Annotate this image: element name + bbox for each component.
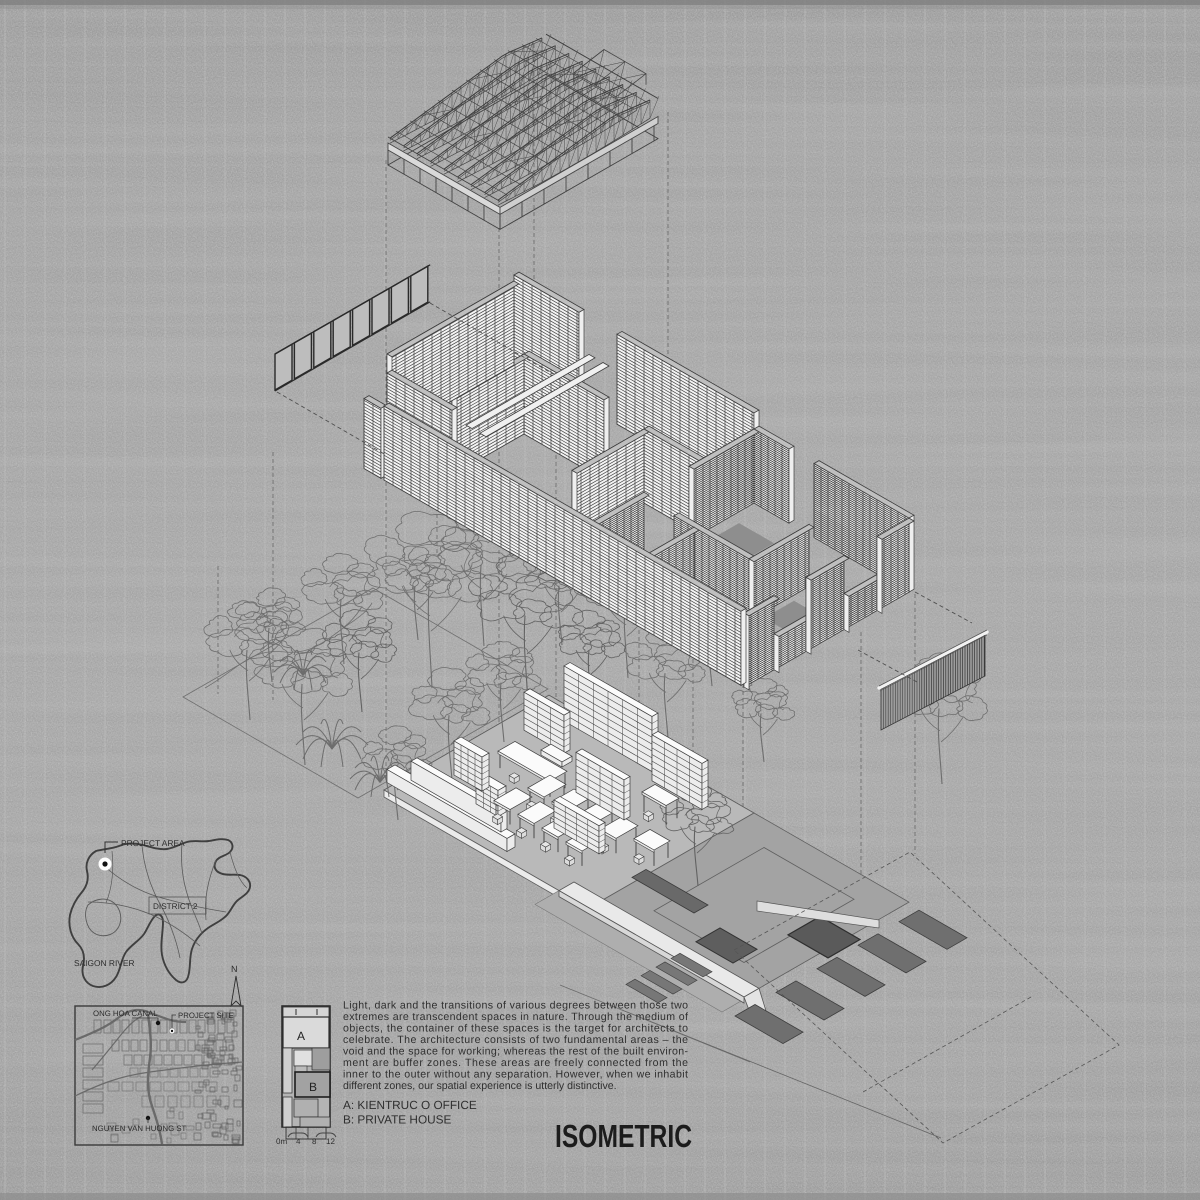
svg-text:ONG HOA CANAL: ONG HOA CANAL — [93, 1009, 158, 1018]
svg-text:NGUYEN VAN HUONG ST: NGUYEN VAN HUONG ST — [92, 1124, 187, 1133]
svg-text:Light, dark and the transition: Light, dark and the transitions of vario… — [343, 1000, 688, 1012]
svg-text:8: 8 — [312, 1137, 317, 1146]
svg-text:inner to the outer without any: inner to the outer without any separatio… — [343, 1069, 688, 1081]
svg-text:12: 12 — [326, 1137, 335, 1146]
svg-text:DISTRICT 2: DISTRICT 2 — [153, 902, 198, 911]
svg-text:N: N — [231, 964, 238, 974]
svg-text:B: PRIVATE HOUSE: B: PRIVATE HOUSE — [343, 1113, 452, 1127]
svg-text:PROJECT SITE: PROJECT SITE — [178, 1011, 234, 1020]
svg-text:ISOMETRIC: ISOMETRIC — [555, 1118, 692, 1154]
svg-text:SAIGON RIVER: SAIGON RIVER — [74, 958, 135, 968]
svg-text:void and the space for working: void and the space for working; whereas … — [343, 1046, 688, 1058]
svg-text:ment are buffer zones. These a: ment are buffer zones. These areas are f… — [343, 1057, 688, 1069]
svg-text:objects, the container of thes: objects, the container of these spaces i… — [343, 1023, 688, 1035]
svg-text:A: A — [297, 1029, 305, 1043]
svg-text:A: KIENTRUC O OFFICE: A: KIENTRUC O OFFICE — [343, 1098, 477, 1112]
svg-text:4: 4 — [296, 1137, 301, 1146]
svg-text:0m: 0m — [276, 1137, 287, 1146]
svg-text:PROJECT AREA: PROJECT AREA — [121, 838, 185, 848]
svg-text:celebrate. The architecture co: celebrate. The architecture consists of … — [343, 1034, 688, 1046]
svg-text:extremes are transcendent spac: extremes are transcendent spaces in natu… — [343, 1011, 688, 1023]
svg-text:B: B — [309, 1080, 317, 1094]
svg-text:different zones, our spatial e: different zones, our spatial experience … — [343, 1080, 617, 1092]
